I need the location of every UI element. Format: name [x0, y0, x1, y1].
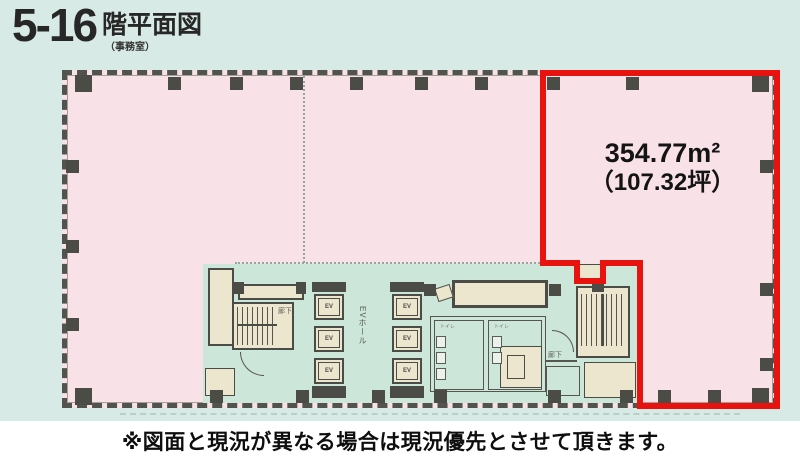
kitchenette-room	[500, 346, 542, 388]
column	[66, 240, 79, 253]
ev-hall-label: EVホール	[356, 306, 368, 384]
corridor-label-left: 廊下	[278, 306, 292, 316]
column	[168, 77, 181, 90]
service-room	[238, 284, 304, 300]
wall-block	[234, 282, 244, 294]
machine-room	[452, 280, 548, 308]
title-room-type: （事務室）	[105, 38, 155, 53]
column	[475, 77, 488, 90]
ev-label: EV	[396, 298, 418, 316]
column	[296, 390, 309, 403]
elevator-cell: EV	[392, 358, 422, 384]
wall-block	[296, 282, 306, 294]
elevator-cell: EV	[392, 294, 422, 320]
column	[708, 390, 721, 403]
ev-shaft-wall	[390, 282, 424, 292]
toilet-fixture	[436, 368, 446, 380]
footer-note: ※図面と現況が異なる場合は現況優先とさせて頂きます。	[122, 426, 678, 456]
elevator-cell: EV	[392, 326, 422, 352]
shaft-room	[208, 268, 234, 346]
ev-shaft-wall	[312, 282, 346, 292]
ground-dashed-line	[120, 413, 740, 415]
column	[372, 390, 385, 403]
column	[760, 283, 773, 296]
wall-block	[424, 284, 436, 296]
unit-area-m2: 354.77m²	[555, 138, 770, 168]
title-floor-range: 5-16	[12, 2, 96, 48]
ev-label: EV	[318, 362, 340, 380]
toilet-label-right: トイレ	[494, 323, 509, 330]
toilet-fixture	[436, 352, 446, 364]
toilet-fixture	[492, 352, 502, 364]
stair-rail	[237, 324, 277, 326]
wall-block	[549, 284, 561, 296]
column	[66, 160, 79, 173]
floor-plan-page: 5-16 階平面図 （事務室） 廊下 EV EV EV EV EV EV EVホ…	[0, 0, 800, 460]
column	[626, 77, 639, 90]
column	[350, 77, 363, 90]
title-plan-label: 階平面図	[102, 13, 202, 38]
column	[434, 390, 447, 403]
column	[75, 75, 92, 92]
column	[210, 390, 223, 403]
kitchenette-counter	[507, 355, 525, 379]
unit-area-tsubo: （107.32坪）	[555, 168, 770, 198]
column	[620, 390, 633, 403]
toilet-fixture	[492, 336, 502, 348]
unit-divider-dotted-horizontal	[235, 262, 543, 264]
ev-label: EV	[318, 298, 340, 316]
elevator-cell: EV	[314, 358, 344, 384]
toilet-fixture	[436, 336, 446, 348]
column	[66, 318, 79, 331]
stair-treads	[237, 307, 277, 345]
unit-divider-dotted-vertical	[303, 76, 305, 263]
column	[548, 390, 561, 403]
column	[658, 390, 671, 403]
column	[752, 388, 769, 405]
service-room	[577, 264, 602, 280]
footer-band: ※図面と現況が異なる場合は現況優先とさせて頂きます。	[0, 421, 800, 460]
elevator-cell: EV	[314, 326, 344, 352]
stair-rail	[602, 294, 604, 346]
column	[230, 77, 243, 90]
column	[752, 75, 769, 92]
ev-label: EV	[396, 330, 418, 348]
wall-block	[592, 280, 604, 292]
stairwell-right	[576, 286, 630, 358]
column	[75, 388, 92, 405]
column	[290, 77, 303, 90]
ev-label: EV	[318, 330, 340, 348]
unit-area-label: 354.77m² （107.32坪）	[555, 138, 770, 198]
wall-segment	[545, 360, 577, 362]
ev-shaft-wall	[390, 386, 424, 398]
column	[547, 77, 560, 90]
toilet-label-left: トイレ	[440, 323, 455, 330]
ev-shaft-wall	[312, 386, 346, 398]
column	[760, 358, 773, 371]
column	[415, 77, 428, 90]
elevator-cell: EV	[314, 294, 344, 320]
ev-label: EV	[396, 362, 418, 380]
